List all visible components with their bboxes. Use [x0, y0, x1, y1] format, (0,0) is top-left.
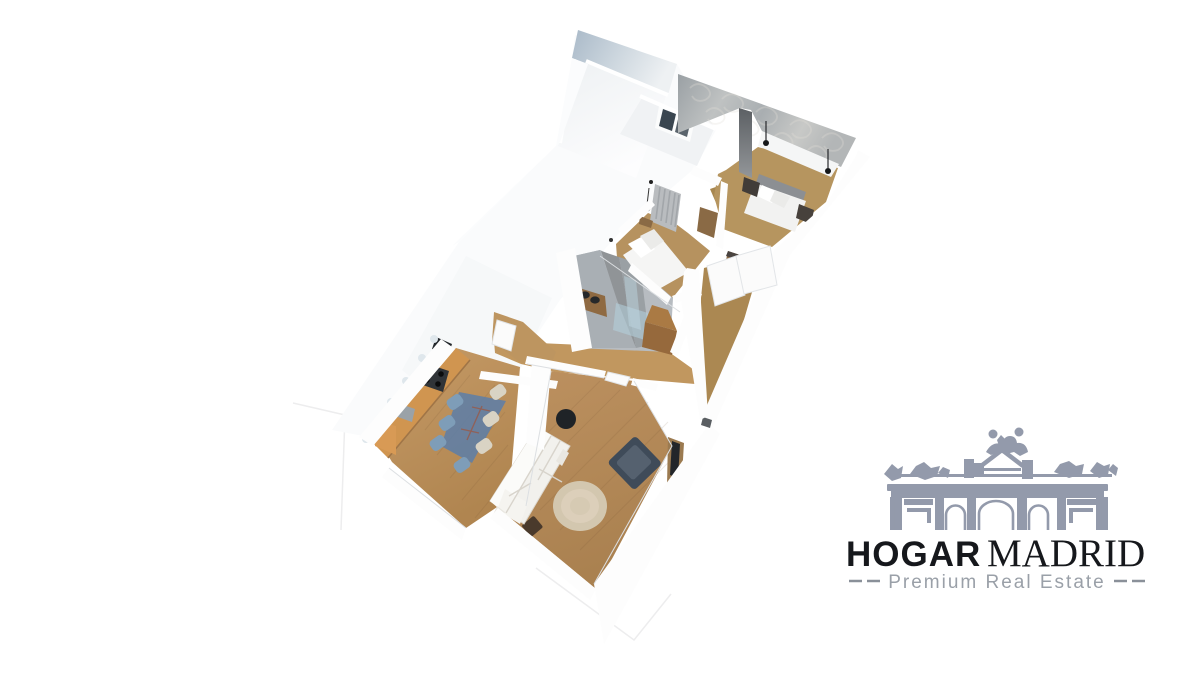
- svg-text:Premium Real Estate: Premium Real Estate: [888, 572, 1106, 593]
- svg-text:MADRID: MADRID: [987, 532, 1145, 575]
- svg-text:HOGAR: HOGAR: [846, 535, 981, 574]
